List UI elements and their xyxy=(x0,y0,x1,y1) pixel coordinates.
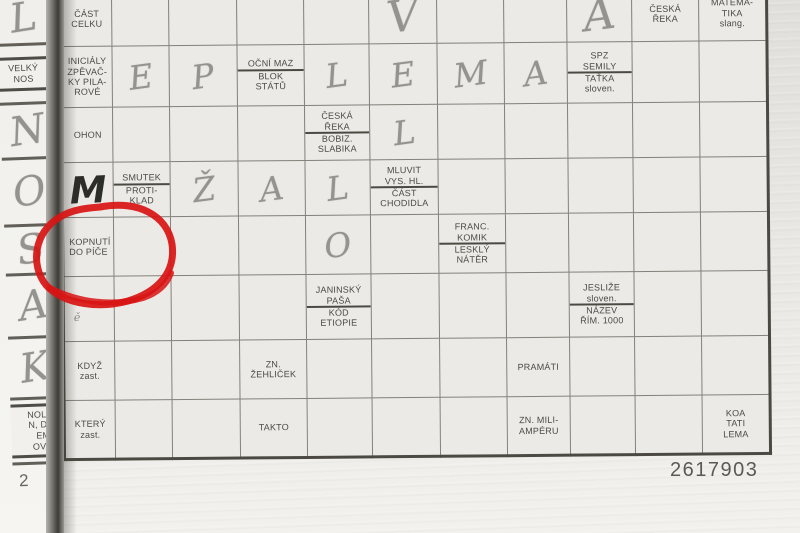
pencil-letter: L xyxy=(324,167,351,209)
pencil-letter: M xyxy=(451,52,490,95)
answer-cell xyxy=(634,271,702,337)
answer-cell xyxy=(307,398,373,458)
clue-text: SPZSEMILY xyxy=(568,50,632,71)
clue-line: sloven. xyxy=(570,293,634,304)
pencil-letter: L xyxy=(323,54,350,96)
pencil-letter: A xyxy=(521,52,550,94)
clue-line: ŘÍM. 1000 xyxy=(570,316,634,327)
clue-cell: SPZSEMILYTAŤKAsloven. xyxy=(567,42,633,104)
answer-cell xyxy=(438,159,505,215)
clue-line: ČESKÁ xyxy=(305,111,369,122)
clue-line: KLAD xyxy=(114,195,170,206)
clue-line: PAŠA xyxy=(307,295,371,306)
pencil-mark: ě xyxy=(65,294,114,323)
clue-text: TAŤKAsloven. xyxy=(568,71,632,94)
answer-cell xyxy=(239,274,307,340)
clue-cell: ZN.ŽEHLIČEK xyxy=(240,339,308,399)
crossword-page: ČÁSTCELKUVAČESKÁŘEKAMATEMA-TIKAslang.INI… xyxy=(64,0,800,533)
answer-cell xyxy=(635,336,703,396)
answer-cell xyxy=(505,158,568,214)
shaded-cell xyxy=(172,340,241,400)
strip-clue-text: VELKÝNOS xyxy=(0,56,51,91)
grid-row: OHONČESKÁŘEKABOBIZ.SLABIKAL xyxy=(64,101,768,162)
answer-cell xyxy=(699,40,768,102)
clue-line: DO PÍČE xyxy=(69,247,113,258)
clue-text: TAKTO xyxy=(241,422,307,433)
clue-cell: INICIÁLYZPĚVAČ-KY PILA-ROVÉ xyxy=(64,46,112,107)
answer-cell: E xyxy=(369,43,438,105)
pencil-letter: L xyxy=(6,0,39,43)
answer-cell xyxy=(437,104,504,160)
answer-cell: A xyxy=(238,160,305,216)
answer-cell xyxy=(440,338,508,398)
answer-cell xyxy=(115,400,173,459)
page-number-fragment: 2 xyxy=(13,465,29,492)
clue-text: PROTI-KLAD xyxy=(114,183,170,206)
clue-line: BOBIZ. xyxy=(305,133,369,144)
clue-line: BLOK xyxy=(238,71,304,82)
clue-text: LESKLÝNÁTĚR xyxy=(439,242,505,265)
clue-cell: ČÁSTCELKU xyxy=(64,0,112,47)
answer-cell xyxy=(568,213,634,273)
clue-line: SPZ xyxy=(568,50,632,61)
answer-cell xyxy=(633,212,701,272)
clue-line: ETIOPIE xyxy=(307,318,371,329)
shaded-cell xyxy=(171,275,240,341)
answer-cell xyxy=(237,105,304,161)
answer-cell: A xyxy=(504,42,568,104)
grid-row: ČÁSTCELKUVAČESKÁŘEKAMATEMA-TIKAslang. xyxy=(64,0,767,47)
shaded-cell xyxy=(172,399,241,459)
clue-line: JANINSKÝ xyxy=(307,285,371,296)
pencil-letter: A xyxy=(580,0,618,42)
clue-text: BLOKSTÁTŮ xyxy=(238,69,304,92)
answer-cell xyxy=(372,338,441,398)
answer-cell xyxy=(112,107,169,162)
answer-cell: M xyxy=(437,43,505,105)
shaded-cell xyxy=(170,216,239,276)
pencil-letter: E xyxy=(389,53,418,95)
clue-line: CELKU xyxy=(64,19,111,30)
answer-cell xyxy=(635,395,703,455)
clue-line: zast. xyxy=(65,371,114,382)
clue-line: ČÁST xyxy=(371,188,438,199)
strip-clue-cell: VELKÝNOS xyxy=(0,45,52,106)
clue-line: ČÁST xyxy=(64,8,111,19)
double-clue: JANINSKÝPAŠAKÓDETIOPIE xyxy=(307,285,371,329)
clue-text: SMUTEK xyxy=(114,172,170,183)
clue-line: AMPÉRU xyxy=(508,425,570,436)
answer-cell xyxy=(307,339,373,399)
clue-line: KY PILA- xyxy=(64,77,112,88)
clue-line: TIKA xyxy=(699,8,765,19)
clue-line: LEMA xyxy=(703,429,769,440)
grid-row: INICIÁLYZPĚVAČ-KY PILA-ROVÉEPOČNÍ MAZBLO… xyxy=(64,40,767,107)
answer-cell xyxy=(700,211,769,271)
clue-text: JANINSKÝPAŠA xyxy=(307,285,371,306)
grid-row: KDYŽzast.ZN.ŽEHLIČEKPRAMÁTI xyxy=(64,335,770,400)
answer-cell xyxy=(503,0,566,43)
answer-cell: P xyxy=(169,45,238,107)
pencil-letter: P xyxy=(190,55,217,97)
clue-line: JESLIŽE xyxy=(570,282,634,293)
answer-cell xyxy=(303,0,368,44)
double-clue: MLUVITVYS. HL.ČÁSTCHODIDLA xyxy=(371,165,438,209)
clue-line: SMUTEK xyxy=(114,172,170,183)
pencil-letter: S xyxy=(14,226,48,275)
pencil-letter: O xyxy=(9,167,49,218)
answer-cell xyxy=(115,341,173,400)
clue-line: KOMIK xyxy=(439,232,505,243)
clue-text: ZN. MILI-AMPÉRU xyxy=(508,415,570,436)
clue-line: FRANC. xyxy=(439,221,505,232)
clue-line: ZN. MILI- xyxy=(508,415,570,426)
clue-cell: JESLIŽEsloven.NÁZEVŘÍM. 1000 xyxy=(569,272,635,338)
clue-line: ROVÉ xyxy=(64,87,112,98)
answer-cell: L xyxy=(305,160,370,216)
clue-text: INICIÁLYZPĚVAČ-KY PILA-ROVÉ xyxy=(64,56,112,98)
pencil-letter: O xyxy=(322,224,354,266)
double-clue: JESLIŽEsloven.NÁZEVŘÍM. 1000 xyxy=(570,282,634,326)
shaded-cell xyxy=(169,106,237,162)
answer-cell xyxy=(702,335,771,395)
clue-cell: JANINSKÝPAŠAKÓDETIOPIE xyxy=(306,274,372,340)
clue-text: MLUVITVYS. HL. xyxy=(371,165,438,186)
clue-line: KÓD xyxy=(307,307,371,318)
answer-cell: E xyxy=(112,46,170,107)
answer-cell xyxy=(632,102,699,158)
answer-cell xyxy=(371,273,440,339)
strip-letter-cell: L xyxy=(0,0,50,47)
answer-cell xyxy=(567,103,632,159)
clue-text: MATEMA-TIKAslang. xyxy=(699,0,765,29)
clue-text: FRANC.KOMIK xyxy=(439,221,505,242)
answer-cell: L xyxy=(369,104,437,160)
clue-line: ŘEKA xyxy=(305,121,369,132)
answer-cell xyxy=(113,217,171,276)
clue-line: NÁTĚR xyxy=(439,255,505,266)
previous-page-edge: LVELKÝNOSNOSAKNOLÍNN, DIEEMAOVAT2 xyxy=(0,0,50,533)
answer-cell xyxy=(238,215,306,275)
clue-line: KTERÝ xyxy=(66,419,115,430)
clue-line: TAŤKA xyxy=(568,73,632,84)
clue-text: KDYŽzast. xyxy=(65,360,114,381)
clue-text: KOATATILEMA xyxy=(703,408,769,440)
answer-cell xyxy=(568,158,633,214)
clue-text: ČESKÁŘEKA xyxy=(632,3,698,24)
pencil-letter: Ž xyxy=(190,168,218,210)
clue-cell: SMUTEKPROTI-KLAD xyxy=(113,162,170,217)
clue-line: zast. xyxy=(66,429,115,440)
clue-line: VYS. HL. xyxy=(371,175,438,186)
answer-cell: Ž xyxy=(170,161,238,217)
answer-cell xyxy=(236,0,303,45)
answer-cell: ě xyxy=(64,276,115,341)
answer-cell xyxy=(699,101,767,157)
clue-line: NÁZEV xyxy=(570,305,634,316)
clue-line: STÁTŮ xyxy=(238,81,304,92)
clue-line: slang. xyxy=(699,18,765,29)
grid-row: MSMUTEKPROTI-KLADŽALMLUVITVYS. HL.ČÁSTCH… xyxy=(64,156,768,217)
clue-cell: KOATATILEMA xyxy=(702,394,771,454)
clue-cell-circled: KOPNUTÍDO PÍČE xyxy=(64,217,114,276)
double-clue: SMUTEKPROTI-KLAD xyxy=(114,172,170,206)
answer-cell xyxy=(632,41,700,103)
answer-cell xyxy=(439,273,507,339)
clue-text: JESLIŽEsloven. xyxy=(570,282,634,303)
clue-line: MLUVIT xyxy=(371,165,438,176)
double-clue: SPZSEMILYTAŤKAsloven. xyxy=(568,50,632,94)
pencil-letter: V xyxy=(384,0,422,43)
clue-line: ŽEHLIČEK xyxy=(240,369,306,380)
answer-cell xyxy=(701,270,770,336)
clue-line: PRAMÁTI xyxy=(507,361,569,372)
clue-cell: OHON xyxy=(64,107,113,162)
clue-cell: ZN. MILI-AMPÉRU xyxy=(507,396,571,456)
clue-cell: KTERÝzast. xyxy=(64,400,116,459)
answer-cell xyxy=(440,397,508,457)
clue-line: CHODIDLA xyxy=(371,198,438,209)
clue-line: NOS xyxy=(1,73,46,85)
pencil-letter: A xyxy=(257,167,286,209)
crossword-grid: ČÁSTCELKUVAČESKÁŘEKAMATEMA-TIKAslang.INI… xyxy=(64,0,772,461)
answer-cell xyxy=(372,397,441,457)
pencil-letter: L xyxy=(390,111,417,153)
double-clue: OČNÍ MAZBLOKSTÁTŮ xyxy=(238,58,304,92)
pencil-letter: N xyxy=(6,105,48,156)
grid-row: KTERÝzast.TAKTOZN. MILI-AMPÉRUKOATATILEM… xyxy=(64,394,770,459)
clue-text: ČÁSTCHODIDLA xyxy=(371,186,438,209)
clue-cell: FRANC.KOMIKLESKLÝNÁTĚR xyxy=(438,214,506,274)
clue-text: PRAMÁTI xyxy=(507,361,569,372)
answer-cell xyxy=(436,0,503,43)
answer-cell xyxy=(114,276,172,341)
answer-cell xyxy=(111,0,168,46)
clue-cell: PRAMÁTI xyxy=(507,337,571,397)
answer-cell xyxy=(570,337,636,397)
answer-cell: V xyxy=(368,0,436,44)
clue-text: KTERÝzast. xyxy=(66,419,115,440)
clue-line: ZPĚVAČ- xyxy=(64,66,112,77)
clue-text: NÁZEVŘÍM. 1000 xyxy=(570,303,634,326)
clue-line: SLABIKA xyxy=(305,144,369,155)
clue-line: OČNÍ MAZ xyxy=(238,58,304,69)
clue-line: SEMILY xyxy=(568,61,632,72)
shaded-cell xyxy=(168,0,236,46)
clue-cell: MLUVITVYS. HL.ČÁSTCHODIDLA xyxy=(370,159,438,215)
answer-cell xyxy=(370,214,439,274)
answer-cell: M xyxy=(64,162,113,217)
clue-text: ČESKÁŘEKA xyxy=(305,111,369,132)
answer-cell xyxy=(506,272,570,338)
clue-line: LESKLÝ xyxy=(439,244,505,255)
clue-cell: ČESKÁŘEKA xyxy=(631,0,698,42)
ink-letter: M xyxy=(69,168,108,213)
clue-text: KÓDETIOPIE xyxy=(307,305,371,328)
clue-line: KOA xyxy=(703,408,769,419)
pencil-letter: E xyxy=(126,55,155,97)
answer-cell xyxy=(570,396,636,456)
double-clue: FRANC.KOMIKLESKLÝNÁTĚR xyxy=(439,221,505,265)
answer-cell: L xyxy=(304,44,370,106)
clue-line: TAKTO xyxy=(241,422,307,433)
clue-line: sloven. xyxy=(568,84,632,95)
puzzle-number: 2617903 xyxy=(670,459,758,482)
clue-cell: ČESKÁŘEKABOBIZ.SLABIKA xyxy=(304,105,369,161)
clue-text: KOPNUTÍDO PÍČE xyxy=(64,236,113,257)
clue-line: KDYŽ xyxy=(65,360,114,371)
clue-line: KOPNUTÍ xyxy=(69,236,113,247)
clue-cell: KDYŽzast. xyxy=(64,341,115,400)
clue-line: PROTI- xyxy=(114,185,170,196)
clue-cell: MATEMA-TIKAslang. xyxy=(698,0,766,41)
double-clue: ČESKÁŘEKABOBIZ.SLABIKA xyxy=(305,111,369,155)
clue-line: INICIÁLY xyxy=(64,56,112,67)
clue-text: BOBIZ.SLABIKA xyxy=(305,131,369,154)
grid-row: KOPNUTÍDO PÍČEOFRANC.KOMIKLESKLÝNÁTĚR xyxy=(64,211,769,276)
clue-text: ZN.ŽEHLIČEK xyxy=(240,359,306,380)
answer-cell xyxy=(633,157,700,213)
answer-cell xyxy=(505,213,569,273)
grid-row: ěJANINSKÝPAŠAKÓDETIOPIEJESLIŽEsloven.NÁZ… xyxy=(64,270,770,341)
clue-cell: OČNÍ MAZBLOKSTÁTŮ xyxy=(237,44,305,106)
clue-text: ČÁSTCELKU xyxy=(64,8,111,29)
clue-text: OČNÍ MAZ xyxy=(238,58,304,69)
clue-text: OHON xyxy=(64,129,112,140)
answer-cell: O xyxy=(305,215,371,275)
clue-line: ŘEKA xyxy=(632,14,698,25)
clue-cell: TAKTO xyxy=(240,398,308,458)
clue-line: OHON xyxy=(64,129,112,140)
answer-cell xyxy=(700,156,768,212)
clue-line: ČESKÁ xyxy=(632,3,698,14)
clue-line: ZN. xyxy=(240,359,306,370)
clue-line: TATI xyxy=(703,418,769,429)
answer-cell: A xyxy=(566,0,631,42)
answer-cell xyxy=(504,103,567,159)
